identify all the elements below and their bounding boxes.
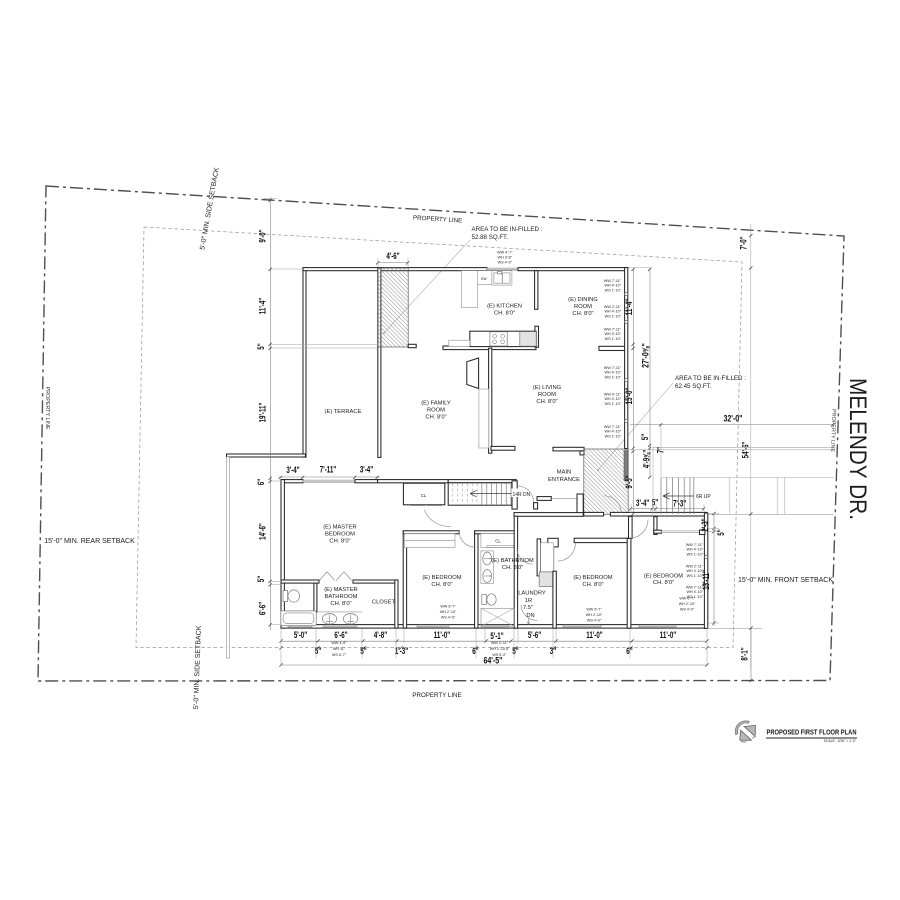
- svg-text:AREA TO BE IN-FILLED :: AREA TO BE IN-FILLED :: [472, 226, 543, 233]
- svg-text:WH 3'-8": WH 3'-8": [498, 256, 513, 260]
- svg-text:WS 1'-10": WS 1'-10": [605, 434, 622, 438]
- svg-text:WW 9'-11": WW 9'-11": [604, 393, 622, 397]
- svg-text:WH 11": WH 11": [333, 647, 346, 651]
- svg-text:11'-0": 11'-0": [586, 630, 602, 640]
- svg-text:WH 2'-10": WH 2'-10": [679, 602, 696, 606]
- svg-text:WW 6'-7": WW 6'-7": [586, 608, 602, 612]
- svg-text:15'-0" MIN. REAR SETBACK: 15'-0" MIN. REAR SETBACK: [44, 538, 135, 545]
- svg-text:WW 6'-7": WW 6'-7": [440, 605, 456, 609]
- svg-text:CH. 8'0": CH. 8'0": [653, 580, 674, 586]
- svg-text:CH. 8'0": CH. 8'0": [425, 415, 446, 421]
- svg-text:3'-4": 3'-4": [360, 464, 373, 474]
- svg-text:WH 4'-10": WH 4'-10": [604, 430, 621, 434]
- svg-text:(E) KITCHEN: (E) KITCHEN: [487, 304, 522, 310]
- svg-text:WS 1'-10": WS 1'-10": [605, 314, 622, 318]
- svg-text:BEDROOM: BEDROOM: [325, 532, 355, 538]
- svg-text:(E) BEDROOM: (E) BEDROOM: [422, 575, 461, 581]
- svg-text:WS 4'-0": WS 4'-0": [587, 619, 602, 623]
- svg-text:7.5": 7.5": [523, 605, 533, 611]
- svg-text:ENTRANCE: ENTRANCE: [548, 477, 580, 483]
- svg-text:MAIN: MAIN: [557, 470, 572, 476]
- svg-text:3'-4": 3'-4": [636, 498, 649, 508]
- svg-text:WS 4'-0": WS 4'-0": [498, 261, 513, 265]
- svg-text:14R DN: 14R DN: [513, 492, 531, 498]
- svg-text:WW 7'-11": WW 7'-11": [604, 366, 622, 370]
- svg-text:7'-11": 7'-11": [320, 465, 336, 475]
- svg-text:MELENDY DR.: MELENDY DR.: [844, 378, 871, 520]
- svg-text:DN: DN: [526, 613, 534, 619]
- svg-text:(E) BEDROOM: (E) BEDROOM: [573, 575, 612, 581]
- svg-text:5": 5": [256, 576, 266, 582]
- svg-text:(E) TERRACE: (E) TERRACE: [325, 409, 362, 415]
- svg-text:WS 4'-0": WS 4'-0": [441, 616, 456, 620]
- svg-text:62.45 SQ.FT.: 62.45 SQ.FT.: [675, 383, 712, 390]
- svg-text:9'-5": 9'-5": [624, 475, 634, 488]
- svg-text:WS 1'-10": WS 1'-10": [605, 375, 622, 379]
- svg-text:ROOM: ROOM: [538, 392, 556, 398]
- svg-text:CH. 8'0": CH. 8'0": [582, 582, 603, 588]
- svg-text:3'-4": 3'-4": [286, 465, 299, 475]
- svg-text:WW 6'-7": WW 6'-7": [679, 597, 695, 601]
- svg-text:CH. 8'0": CH. 8'0": [329, 539, 350, 545]
- svg-text:(E) MASTER: (E) MASTER: [324, 587, 358, 593]
- svg-text:CLOSET: CLOSET: [372, 600, 396, 606]
- svg-text:5'-6": 5'-6": [528, 630, 541, 640]
- svg-text:6": 6": [256, 479, 266, 485]
- svg-text:4'-9⅝": 4'-9⅝": [642, 450, 652, 469]
- svg-text:11'-4": 11'-4": [258, 298, 268, 314]
- svg-text:WW 2'-11": WW 2'-11": [491, 641, 509, 645]
- svg-text:4'-6": 4'-6": [386, 251, 399, 261]
- svg-text:8'-1": 8'-1": [740, 647, 750, 660]
- svg-text:CL: CL: [495, 539, 501, 544]
- svg-text:5": 5": [640, 434, 650, 440]
- svg-text:CH. 8'0": CH. 8'0": [431, 582, 452, 588]
- svg-text:6'-6": 6'-6": [334, 630, 347, 640]
- svg-text:WH 4'-10": WH 4'-10": [604, 332, 621, 336]
- svg-text:WW 2'-11": WW 2'-11": [686, 565, 704, 569]
- svg-text:WW 4'-7": WW 4'-7": [497, 251, 513, 255]
- svg-text:WS 1'-10": WS 1'-10": [605, 402, 622, 406]
- svg-text:14'-6": 14'-6": [258, 523, 268, 540]
- svg-text:DW: DW: [481, 277, 487, 281]
- svg-text:4'-8": 4'-8": [374, 630, 387, 640]
- svg-text:5": 5": [256, 343, 266, 349]
- svg-text:SCALE : 3/16" = 1'-0": SCALE : 3/16" = 1'-0": [824, 739, 857, 743]
- svg-text:13'-11": 13'-11": [701, 570, 711, 590]
- svg-text:WW 2'-11": WW 2'-11": [604, 305, 622, 309]
- svg-text:WW 7'-11": WW 7'-11": [604, 328, 622, 332]
- svg-text:5": 5": [716, 529, 726, 535]
- svg-text:CH. 8'0": CH. 8'0": [494, 311, 515, 317]
- svg-text:(E) LIVING: (E) LIVING: [533, 385, 562, 391]
- svg-text:WS 4'-0": WS 4'-0": [680, 608, 695, 612]
- svg-text:WH 4'-10": WH 4'-10": [686, 548, 703, 552]
- svg-text:LAUNDRY: LAUNDRY: [518, 591, 546, 597]
- svg-text:52.88 SQ.FT.: 52.88 SQ.FT.: [472, 234, 509, 241]
- svg-text:ROOM: ROOM: [427, 408, 445, 414]
- svg-text:CH. 8'0": CH. 8'0": [536, 399, 557, 405]
- svg-text:CH. 8'0": CH. 8'0": [572, 311, 593, 317]
- svg-text:11'-0": 11'-0": [434, 630, 450, 640]
- svg-text:AREA TO BE IN-FILLED :: AREA TO BE IN-FILLED :: [675, 375, 746, 382]
- svg-text:19'-11": 19'-11": [258, 403, 268, 423]
- svg-text:WH 4'-10": WH 4'-10": [604, 397, 621, 401]
- svg-text:27'-0⅝": 27'-0⅝": [641, 343, 652, 368]
- svg-text:(E) MASTER: (E) MASTER: [323, 525, 357, 531]
- svg-text:(E) FAMILY: (E) FAMILY: [421, 401, 451, 407]
- svg-text:5": 5": [360, 646, 366, 656]
- svg-text:7'-3": 7'-3": [673, 499, 686, 509]
- svg-text:11'-4": 11'-4": [624, 299, 634, 315]
- svg-text:WW 7'-11": WW 7'-11": [604, 279, 622, 283]
- svg-text:CL: CL: [421, 493, 427, 498]
- svg-text:WS 1'-10": WS 1'-10": [687, 552, 704, 556]
- svg-text:WH 1'-10.5": WH 1'-10.5": [490, 647, 510, 651]
- svg-text:15'-0" MIN. FRONT SETBACK: 15'-0" MIN. FRONT SETBACK: [738, 577, 833, 584]
- svg-text:5'-1": 5'-1": [490, 631, 503, 641]
- svg-text:5'-0": 5'-0": [294, 630, 307, 640]
- svg-text:9'-0": 9'-0": [258, 229, 268, 242]
- svg-text:6": 6": [472, 646, 478, 656]
- svg-text:WH 2'-10": WH 2'-10": [586, 613, 603, 617]
- svg-text:(E) BEDROOM: (E) BEDROOM: [644, 574, 683, 580]
- svg-text:PROPERTY LINE: PROPERTY LINE: [412, 692, 461, 699]
- svg-text:WH 4'-10": WH 4'-10": [604, 371, 621, 375]
- svg-text:WW 7'-11": WW 7'-11": [686, 543, 704, 547]
- svg-text:15'-0": 15'-0": [624, 388, 634, 405]
- svg-text:WH 4'-10": WH 4'-10": [604, 310, 621, 314]
- svg-text:PROPERTY LINE: PROPERTY LINE: [44, 387, 50, 430]
- svg-text:(E) BATHROOM: (E) BATHROOM: [491, 558, 534, 564]
- svg-text:WW 4'-6": WW 4'-6": [331, 641, 347, 645]
- svg-text:7'-0": 7'-0": [739, 236, 749, 249]
- svg-text:CH. 8'0": CH. 8'0": [330, 601, 351, 607]
- svg-text:5": 5": [512, 646, 518, 656]
- svg-text:WH 4'-10": WH 4'-10": [604, 284, 621, 288]
- svg-text:WW 7'-11": WW 7'-11": [604, 425, 622, 429]
- svg-text:PROPOSED FIRST FLOOR PLAN: PROPOSED FIRST FLOOR PLAN: [767, 728, 857, 737]
- svg-text:WS 1'-10": WS 1'-10": [605, 337, 622, 341]
- svg-text:CH. 8'0": CH. 8'0": [502, 565, 523, 571]
- svg-text:6'-6": 6'-6": [258, 602, 268, 615]
- svg-text:WS 1'-10": WS 1'-10": [605, 288, 622, 292]
- svg-text:BATHROOM: BATHROOM: [324, 594, 357, 600]
- svg-text:WS 6'-7": WS 6'-7": [332, 653, 347, 657]
- svg-text:32'-0": 32'-0": [724, 414, 743, 425]
- svg-text:1R: 1R: [525, 598, 532, 604]
- svg-text:ROOM: ROOM: [574, 304, 592, 310]
- svg-text:WH 2'-10": WH 2'-10": [440, 610, 457, 614]
- svg-text:(E) DINING: (E) DINING: [568, 297, 598, 303]
- svg-text:6R UP: 6R UP: [696, 494, 711, 500]
- svg-text:2'-3": 2'-3": [700, 518, 710, 531]
- svg-text:11'-0": 11'-0": [660, 630, 676, 640]
